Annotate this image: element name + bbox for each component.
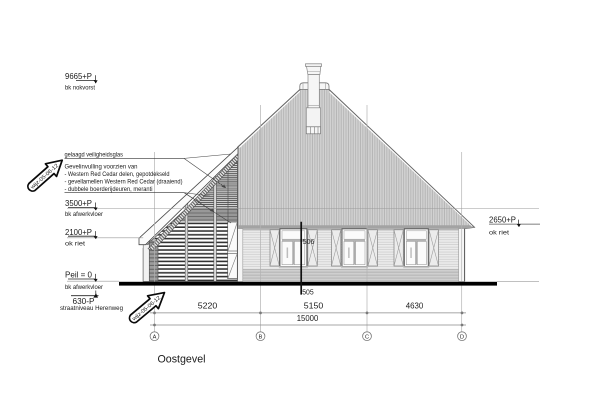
svg-text:ok riet: ok riet — [65, 241, 85, 248]
svg-text:2650+P: 2650+P — [489, 216, 516, 225]
svg-text:- gevellamellen Western Red Ce: - gevellamellen Western Red Cedar (draai… — [65, 178, 183, 185]
svg-text:gelaagd veiligheidsglas: gelaagd veiligheidsglas — [65, 152, 124, 159]
svg-text:bk afwerkvloer: bk afwerkvloer — [65, 284, 104, 291]
svg-text:ok riet: ok riet — [489, 230, 509, 237]
svg-text:506: 506 — [303, 237, 315, 246]
svg-text:straatniveau Herenweg: straatniveau Herenweg — [60, 305, 123, 312]
svg-text:Gevelinvulling voorzien van: Gevelinvulling voorzien van — [65, 164, 138, 171]
svg-text:4630: 4630 — [406, 302, 424, 311]
svg-text:B: B — [259, 335, 263, 341]
svg-text:505: 505 — [302, 287, 314, 296]
svg-text:- dubbele boerderijdeuren, mer: - dubbele boerderijdeuren, meranti — [65, 186, 153, 193]
svg-text:A: A — [153, 335, 157, 341]
svg-text:bk nokvorst: bk nokvorst — [65, 84, 95, 91]
svg-text:9665+P: 9665+P — [65, 72, 92, 81]
svg-text:5220: 5220 — [198, 302, 218, 311]
svg-text:D: D — [460, 335, 464, 341]
svg-text:bk afwerkvloer: bk afwerkvloer — [65, 211, 104, 218]
svg-text:2100+P: 2100+P — [65, 228, 92, 237]
svg-text:5150: 5150 — [304, 302, 324, 311]
svg-text:Oostgevel: Oostgevel — [158, 354, 206, 366]
svg-text:15000: 15000 — [297, 314, 319, 323]
svg-text:Peil = 0: Peil = 0 — [65, 270, 92, 279]
svg-text:3500+P: 3500+P — [65, 199, 92, 208]
svg-text:C: C — [365, 335, 369, 341]
svg-text:- Western Red Cedar delen, gep: - Western Red Cedar delen, gepotdekseld — [65, 171, 170, 178]
